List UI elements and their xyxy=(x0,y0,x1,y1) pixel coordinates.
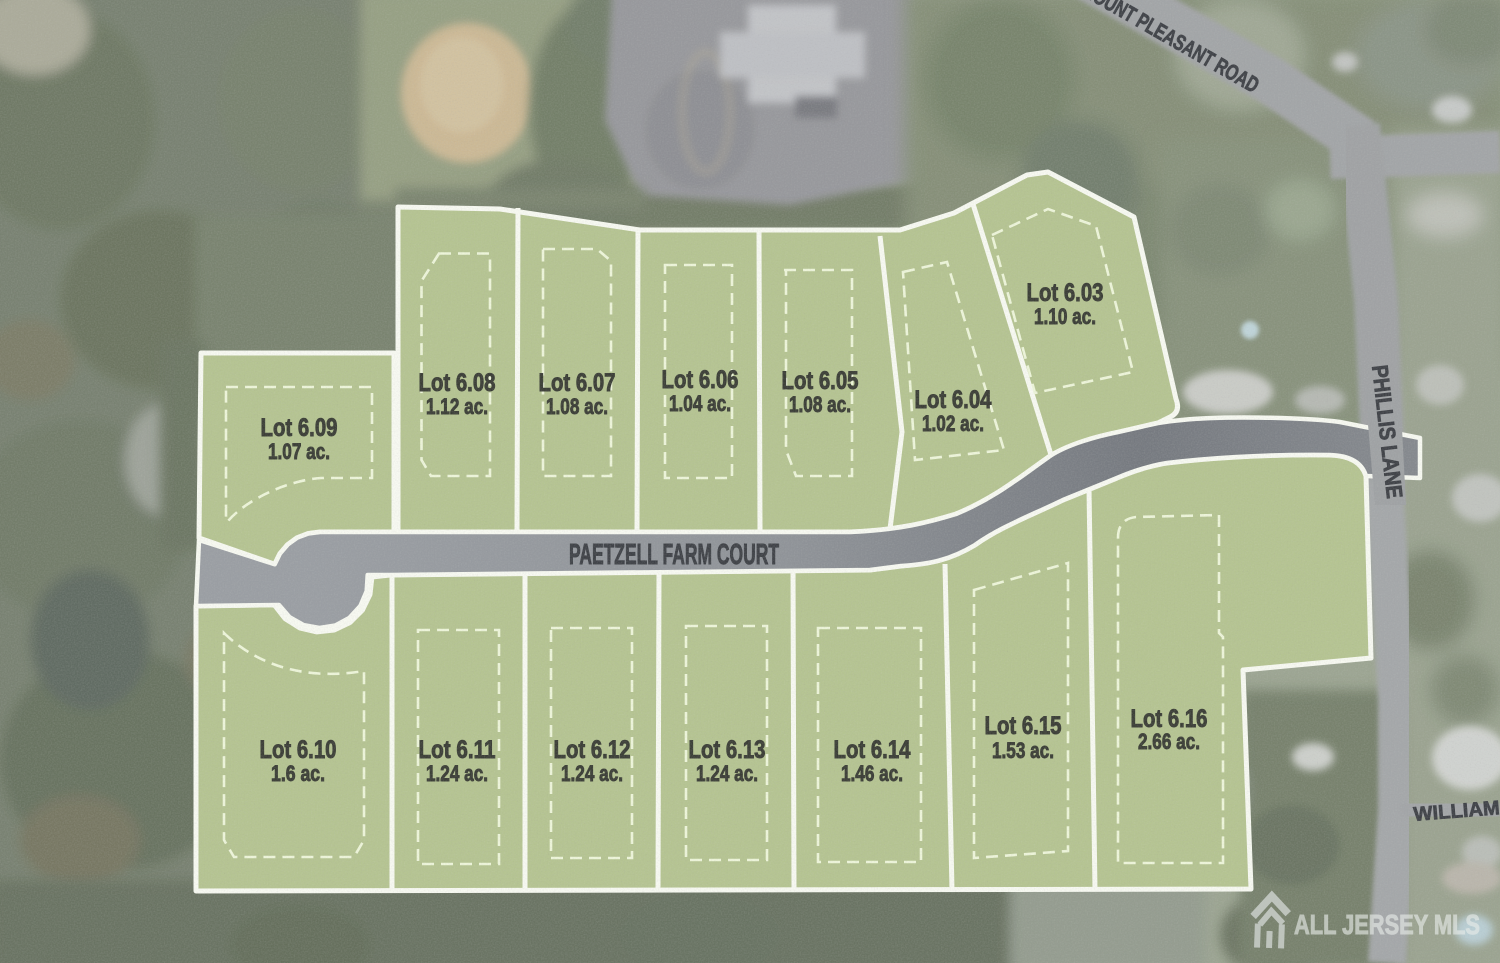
svg-text:ALL JERSEY MLS: ALL JERSEY MLS xyxy=(1294,909,1480,940)
